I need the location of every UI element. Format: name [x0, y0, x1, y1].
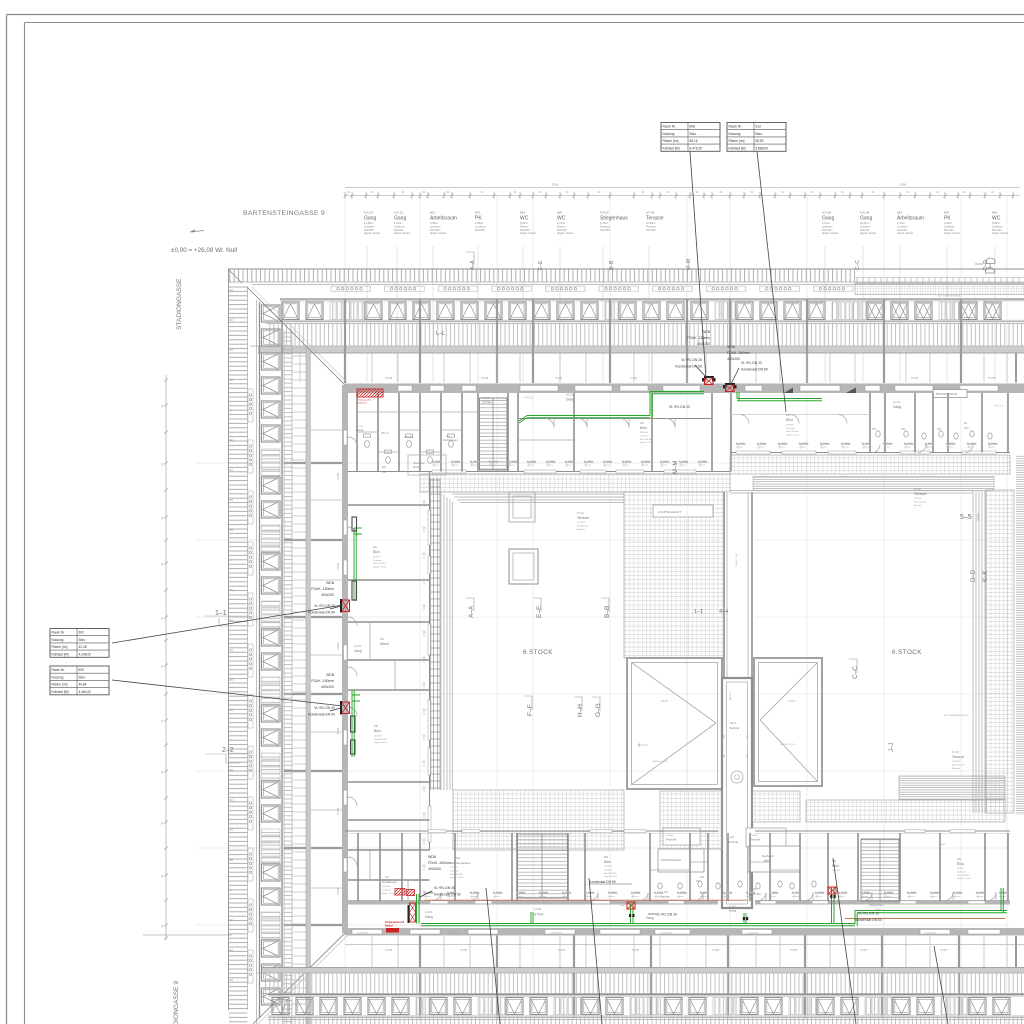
svg-text:Sozialraum: Sozialraum [443, 438, 459, 442]
svg-text:Büro: Büro [690, 132, 697, 136]
svg-text:Einbauwand in: Einbauwand in [357, 400, 372, 402]
svg-text:H=295: H=295 [630, 377, 638, 380]
svg-text:94: 94 [161, 664, 164, 667]
svg-text:Raum Nr.: Raum Nr. [729, 125, 743, 129]
svg-text:94: 94 [161, 562, 164, 565]
svg-text:94: 94 [991, 191, 994, 194]
svg-text:RL 3WWA: RL 3WWA [677, 892, 687, 895]
svg-text:5.888,00: 5.888,00 [756, 146, 769, 150]
svg-text:613: 613 [756, 125, 762, 129]
svg-text:6-C.05: 6-C.05 [822, 211, 831, 215]
svg-text:62,41m²: 62,41m² [373, 555, 381, 558]
svg-text:6-G.04: 6-G.04 [860, 211, 870, 215]
svg-text:H=295: H=295 [988, 377, 996, 380]
svg-text:RH=221: RH=221 [860, 228, 870, 232]
svg-text:RH=330: RH=330 [600, 228, 610, 232]
svg-text:94: 94 [751, 191, 754, 194]
svg-text:Flachdach: Flachdach [762, 854, 775, 858]
svg-text:Gang: Gang [646, 916, 654, 920]
svg-text:abgeh. Decke: abgeh. Decke [992, 231, 1009, 235]
svg-text:Büro: Büro [374, 729, 381, 733]
svg-text:H=295: H=295 [337, 642, 340, 650]
svg-text:GEFÄLLE 1,5%: GEFÄLLE 1,5% [652, 760, 667, 763]
svg-text:WC: WC [964, 426, 969, 430]
svg-text:±0,00 = +26,08 Wr. Null: ±0,00 = +26,08 Wr. Null [171, 247, 237, 254]
svg-text:RL 3WWA: RL 3WWA [769, 892, 779, 895]
svg-text:Büro: Büro [640, 426, 647, 430]
svg-text:STADIONGASSE: STADIONGASSE [176, 278, 183, 330]
svg-text:RH=230-266: RH=230-266 [640, 439, 653, 441]
svg-text:Gang: Gang [356, 428, 364, 432]
svg-text:94: 94 [936, 191, 939, 194]
svg-text:RL 3WWA: RL 3WWA [654, 892, 664, 895]
svg-text:Kondensat DN 50: Kondensat DN 50 [589, 880, 616, 884]
svg-text:H=295: H=295 [385, 949, 393, 952]
svg-text:4,75m²: 4,75m² [600, 221, 608, 225]
svg-text:FDUK -150mm: FDUK -150mm [311, 587, 334, 591]
svg-text:RL 3WWA: RL 3WWA [946, 443, 956, 446]
svg-text:RL 3WWA: RL 3WWA [546, 461, 556, 464]
svg-text:STGH: STGH [534, 913, 544, 917]
svg-text:abgeh. Decke: abgeh. Decke [430, 231, 447, 235]
svg-text:94: 94 [963, 191, 966, 194]
svg-text:42,48: 42,48 [79, 645, 87, 649]
svg-text:68,16: 68,16 [690, 139, 698, 143]
svg-text:+28,30: +28,30 [660, 699, 669, 703]
svg-text:5–5: 5–5 [960, 514, 972, 521]
svg-text:G–G: G–G [595, 703, 602, 717]
svg-text:RH=230: RH=230 [475, 228, 485, 232]
svg-text:WC: WC [937, 427, 942, 431]
svg-text:Terrasse: Terrasse [577, 516, 589, 520]
svg-text:RL 3WWA: RL 3WWA [451, 461, 461, 464]
svg-text:Gang: Gang [394, 216, 406, 222]
svg-text:Technik: Technik [728, 840, 739, 844]
svg-text:RL 3WWA: RL 3WWA [489, 461, 499, 464]
svg-text:RL 3WWA: RL 3WWA [603, 461, 613, 464]
svg-text:44,84: 44,84 [79, 683, 87, 687]
svg-text:GLAS: GLAS [620, 904, 626, 907]
svg-text:400x200: 400x200 [321, 593, 334, 597]
svg-text:RL 3WWA: RL 3WWA [862, 443, 872, 446]
svg-text:6-C.04: 6-C.04 [893, 401, 901, 404]
svg-text:Bituplan: Bituplan [952, 767, 961, 770]
svg-text:Terasse: Terasse [646, 216, 664, 222]
svg-text:PK: PK [872, 427, 876, 431]
svg-text:400x200: 400x200 [428, 867, 441, 871]
svg-text:BARTENSTEINGASSE 9: BARTENSTEINGASSE 9 [243, 210, 325, 217]
svg-text:10,45m²: 10,45m² [914, 497, 922, 500]
svg-text:Linoleum: Linoleum [382, 889, 391, 891]
svg-text:PK: PK [475, 216, 482, 222]
svg-text:Terrazzo: Terrazzo [600, 224, 611, 228]
svg-text:4–4: 4–4 [719, 609, 728, 615]
svg-text:RL 3WWA: RL 3WWA [700, 892, 710, 895]
svg-text:400x200: 400x200 [727, 357, 740, 361]
svg-text:Schulungsraum: Schulungsraum [450, 861, 471, 865]
svg-text:Gang: Gang [364, 216, 376, 222]
svg-text:58,83m²: 58,83m² [786, 423, 794, 426]
svg-text:6-G.01: 6-G.01 [354, 645, 362, 648]
svg-text:94: 94 [872, 191, 875, 194]
svg-text:Gang: Gang [822, 216, 834, 222]
svg-text:H=295: H=295 [860, 949, 868, 952]
svg-text:2560: 2560 [900, 182, 907, 186]
svg-text:Steinplatten: Steinplatten [577, 524, 589, 527]
svg-text:5 STUKCEM: 5 STUKCEM [550, 932, 562, 934]
svg-text:RL 3WWA: RL 3WWA [631, 892, 641, 895]
svg-text:FDUK -150mm: FDUK -150mm [727, 351, 750, 355]
svg-text:abgeh. Decke: abgeh. Decke [860, 231, 877, 235]
svg-text:RL 3WWA: RL 3WWA [539, 892, 549, 895]
svg-text:abgeh. Decke: abgeh. Decke [897, 231, 914, 235]
svg-text:Technik: Technik [729, 726, 740, 730]
svg-text:Nutzung: Nutzung [52, 638, 64, 642]
svg-text:RH=238-284: RH=238-284 [604, 873, 617, 875]
svg-text:94: 94 [781, 191, 784, 194]
svg-text:Linoleum: Linoleum [604, 869, 613, 871]
svg-text:RH=225: RH=225 [520, 228, 530, 232]
svg-text:400x200: 400x200 [321, 685, 334, 689]
svg-text:RL 3WWA: RL 3WWA [470, 461, 480, 464]
svg-text:5,60m²: 5,60m² [520, 221, 528, 225]
svg-text:RL 3WWA: RL 3WWA [792, 892, 802, 895]
svg-text:639: 639 [374, 725, 379, 728]
svg-text:H=295: H=295 [337, 472, 340, 480]
svg-text:VL+RL DN 40: VL+RL DN 40 [434, 886, 455, 890]
svg-text:Fliesen: Fliesen [557, 224, 566, 228]
svg-text:RH=238-265: RH=238-265 [786, 431, 799, 433]
svg-text:abgeh. Decke: abgeh. Decke [944, 231, 961, 235]
svg-text:RL 3WWA: RL 3WWA [562, 892, 572, 895]
svg-text:WC: WC [557, 216, 566, 222]
svg-text:abgeh. Decke: abgeh. Decke [957, 878, 971, 880]
svg-text:94: 94 [538, 191, 541, 194]
svg-text:Beton platten: Beton platten [914, 500, 928, 503]
svg-text:H=295: H=295 [555, 377, 563, 380]
svg-text:625: 625 [944, 211, 949, 215]
svg-text:620: 620 [897, 211, 902, 215]
svg-text:RH=230: RH=230 [944, 228, 954, 232]
svg-text:5,85m²: 5,85m² [992, 221, 1000, 225]
svg-text:Büro: Büro [786, 418, 793, 422]
svg-text:M–M: M–M [673, 461, 679, 474]
svg-text:1–1: 1–1 [694, 609, 703, 615]
svg-text:FDUK -150mm: FDUK -150mm [428, 861, 451, 865]
svg-text:94: 94 [811, 191, 814, 194]
svg-text:6-T.04: 6-T.04 [646, 211, 655, 215]
svg-text:RH=250: RH=250 [364, 228, 374, 232]
svg-text:VL+RL DN 20: VL+RL DN 20 [741, 361, 762, 365]
svg-text:STADIONGASSE 9: STADIONGASSE 9 [173, 981, 180, 1024]
svg-text:Technik: Technik [666, 837, 677, 841]
svg-text:M1: M1 [964, 422, 968, 425]
svg-text:94: 94 [841, 191, 844, 194]
svg-text:4,72m²: 4,72m² [897, 221, 905, 225]
svg-text:36,9m²: 36,9m² [957, 867, 964, 870]
svg-text:+29,30: +29,30 [787, 699, 796, 703]
svg-text:603: 603 [475, 211, 480, 215]
svg-text:Linoleum: Linoleum [364, 224, 375, 228]
svg-text:6-S.06: 6-S.06 [534, 908, 542, 911]
svg-text:94: 94 [642, 191, 645, 194]
svg-text:Linoleum: Linoleum [860, 224, 871, 228]
svg-text:Büro: Büro [373, 550, 380, 554]
svg-text:RH=221: RH=221 [822, 228, 832, 232]
svg-text:RH=236-260: RH=236-260 [374, 739, 387, 741]
svg-text:5 STUKCEM: 5 STUKCEM [448, 932, 460, 934]
svg-text:RL 3WWA: RL 3WWA [660, 461, 670, 464]
svg-text:5 STUKCEM: 5 STUKCEM [660, 932, 672, 934]
svg-text:Fliesen: Fliesen [520, 224, 529, 228]
svg-text:3: 3 [723, 754, 725, 758]
svg-text:RH=230: RH=230 [992, 228, 1002, 232]
svg-text:3,28m²: 3,28m² [475, 221, 483, 225]
svg-text:Terrasse: Terrasse [952, 755, 964, 759]
svg-text:ZULUFT 1,5M: ZULUFT 1,5M [736, 553, 738, 566]
svg-text:Fläche [m²]: Fläche [m²] [52, 645, 68, 649]
svg-text:4.484,00: 4.484,00 [79, 690, 92, 694]
svg-text:94: 94 [161, 770, 164, 773]
svg-text:Rohbaum.: Rohbaum. [357, 403, 367, 405]
svg-text:WDB: WDB [326, 581, 335, 585]
svg-text:GEFÄLLE 1,5%: GEFÄLLE 1,5% [780, 743, 795, 746]
svg-text:VL+RL DN 15: VL+RL DN 15 [858, 912, 879, 916]
svg-text:Kondensat DN 50: Kondensat DN 50 [308, 713, 335, 717]
svg-text:abgeh. Decke: abgeh. Decke [373, 567, 387, 569]
svg-text:Flachdach: Flachdach [413, 461, 426, 465]
svg-text:94: 94 [598, 191, 601, 194]
svg-text:6-C.03: 6-C.03 [364, 211, 373, 215]
svg-text:94: 94 [161, 516, 164, 519]
svg-text:Büro: Büro [79, 638, 86, 642]
svg-text:94: 94 [347, 191, 350, 194]
svg-text:RL 3WWA: RL 3WWA [493, 892, 503, 895]
svg-text:601: 601 [373, 546, 378, 549]
svg-text:8.475,29: 8.475,29 [690, 146, 703, 150]
svg-text:RH=230: RH=230 [430, 228, 440, 232]
svg-text:H=295: H=295 [790, 949, 798, 952]
svg-text:RH=236-252: RH=236-252 [373, 563, 386, 565]
svg-text:Arbeitsraum: Arbeitsraum [897, 216, 924, 222]
svg-text:Linoleum: Linoleum [992, 224, 1003, 228]
svg-text:abgeh. Decke: abgeh. Decke [822, 231, 839, 235]
svg-text:E–E: E–E [538, 260, 544, 270]
svg-text:RL 3WWA: RL 3WWA [757, 443, 767, 446]
svg-text:606: 606 [992, 211, 997, 215]
svg-text:94: 94 [402, 191, 405, 194]
svg-text:RL 3WWA: RL 3WWA [799, 443, 809, 446]
svg-text:RL 3WWA: RL 3WWA [679, 461, 689, 464]
svg-text:D–D: D–D [971, 569, 977, 582]
svg-text:WC: WC [901, 427, 906, 431]
svg-text:H=295: H=295 [940, 949, 948, 952]
svg-text:6-T.01: 6-T.01 [577, 512, 584, 515]
svg-text:RL 3WWA: RL 3WWA [723, 892, 733, 895]
svg-text:5 STUKCEM: 5 STUKCEM [747, 932, 759, 934]
svg-text:E–E: E–E [536, 605, 543, 618]
svg-text:1–1: 1–1 [215, 610, 227, 617]
svg-text:WDB: WDB [727, 345, 736, 349]
svg-text:abgeh. Decke: abgeh. Decke [640, 442, 654, 444]
svg-text:Gang: Gang [893, 405, 901, 409]
svg-text:Kondensat DN 50: Kondensat DN 50 [308, 611, 335, 615]
svg-text:Gang: Gang [566, 398, 574, 402]
svg-text:5 STUKCEM: 5 STUKCEM [357, 932, 369, 934]
svg-text:RL 3WWA: RL 3WWA [584, 461, 594, 464]
svg-text:Rampe: Rampe [385, 924, 394, 927]
svg-text:98,16m²: 98,16m² [640, 431, 648, 434]
svg-text:abgeh. Decke: abgeh. Decke [394, 231, 411, 235]
svg-text:Kühllast [W]: Kühllast [W] [52, 652, 69, 656]
svg-text:609: 609 [79, 668, 85, 672]
svg-text:Linoleum: Linoleum [786, 428, 795, 430]
svg-text:636: 636 [456, 857, 461, 860]
svg-text:RL 3WWA: RL 3WWA [608, 892, 618, 895]
svg-text:Raum Nr.: Raum Nr. [52, 668, 66, 672]
svg-text:2: 2 [746, 735, 748, 739]
svg-text:94: 94 [371, 191, 374, 194]
svg-text:94: 94 [447, 191, 450, 194]
svg-text:ABLUFT: ABLUFT [729, 692, 732, 700]
svg-text:WC-H: WC-H [381, 431, 389, 435]
svg-text:RH=221: RH=221 [394, 228, 404, 232]
svg-text:Bituplan: Bituplan [577, 528, 586, 531]
svg-text:94: 94 [514, 191, 517, 194]
svg-text:Arbeit: Arbeit [380, 642, 389, 646]
svg-text:605: 605 [557, 211, 562, 215]
svg-text:RL 3WWA: RL 3WWA [746, 892, 756, 895]
svg-text:13,48m²: 13,48m² [364, 221, 374, 225]
svg-text:Arbeitsraum: Arbeitsraum [430, 216, 457, 222]
svg-text:abgeh. Decke: abgeh. Decke [786, 435, 800, 437]
svg-text:RL 3WWA: RL 3WWA [904, 443, 914, 446]
svg-text:621: 621 [730, 836, 735, 839]
svg-text:K–K: K–K [983, 571, 989, 582]
svg-text:Gang: Gang [425, 915, 433, 919]
svg-text:6.STOCK: 6.STOCK [892, 649, 922, 656]
svg-text:Büro: Büro [756, 132, 763, 136]
svg-text:RL 3WWA: RL 3WWA [884, 892, 894, 895]
svg-text:RH=238-263: RH=238-263 [957, 875, 970, 877]
svg-text:M–M: M–M [686, 259, 692, 270]
svg-text:600: 600 [640, 422, 645, 425]
svg-text:3,51m²: 3,51m² [822, 221, 830, 225]
svg-text:C–C: C–C [855, 260, 861, 270]
svg-text:4,76m²: 4,76m² [557, 221, 565, 225]
svg-text:Nutzung: Nutzung [52, 675, 64, 679]
svg-text:WDB: WDB [702, 330, 711, 334]
svg-text:Linoleum: Linoleum [944, 224, 955, 228]
svg-text:2–2: 2–2 [222, 747, 234, 754]
svg-text:6-T.02: 6-T.02 [914, 488, 921, 491]
svg-text:94: 94 [720, 191, 723, 194]
svg-text:40,04m²: 40,04m² [382, 885, 390, 888]
svg-text:626: 626 [604, 856, 609, 859]
svg-text:Kühllast [W]: Kühllast [W] [663, 146, 680, 150]
svg-text:Linoleum: Linoleum [640, 435, 649, 437]
svg-text:33,05m²: 33,05m² [450, 866, 458, 869]
svg-text:C–C: C–C [852, 666, 859, 679]
svg-text:WDB: WDB [428, 855, 437, 859]
svg-text:RL 3WWA: RL 3WWA [565, 461, 575, 464]
svg-text:Kühllast [W]: Kühllast [W] [52, 690, 69, 694]
svg-text:2: 2 [723, 735, 725, 739]
svg-text:Gang: Gang [354, 649, 362, 653]
svg-text:PK: PK [696, 879, 700, 883]
svg-text:Büro: Büro [957, 862, 964, 866]
svg-text:RH=230: RH=230 [897, 228, 907, 232]
svg-text:RL 3WWA: RL 3WWA [508, 461, 518, 464]
svg-text:94: 94 [906, 191, 909, 194]
svg-text:Kondensat DN 50: Kondensat DN 50 [855, 918, 882, 922]
svg-text:Linoleum: Linoleum [450, 870, 459, 872]
svg-text:H–H: H–H [577, 704, 584, 717]
svg-text:WC-DA: WC-DA [404, 435, 414, 439]
svg-text:GLAS: GLAS [940, 843, 946, 846]
svg-text:5 STUKCEM: 5 STUKCEM [924, 932, 936, 934]
svg-text:LICHTSCHACHT: LICHTSCHACHT [661, 858, 681, 862]
svg-text:44,84m²: 44,84m² [374, 734, 382, 737]
svg-text:Büro: Büro [604, 860, 611, 864]
svg-text:RL 3WWA: RL 3WWA [698, 461, 708, 464]
svg-text:F–F: F–F [527, 704, 534, 716]
svg-text:Sanitär: Sanitär [660, 895, 670, 899]
svg-text:Kondensat DN 50: Kondensat DN 50 [434, 893, 461, 897]
svg-text:J–J: J–J [889, 743, 895, 752]
svg-text:PK: PK [944, 216, 951, 222]
svg-text:94: 94 [481, 191, 484, 194]
svg-text:94: 94 [161, 821, 164, 824]
svg-text:6-S.01: 6-S.01 [600, 211, 609, 215]
svg-text:RL 3WWA: RL 3WWA [432, 461, 442, 464]
svg-text:abgeh. Decke: abgeh. Decke [364, 231, 381, 235]
svg-text:Linoleum: Linoleum [373, 560, 382, 562]
svg-text:638: 638 [752, 888, 757, 891]
svg-text:RL 3WWA: RL 3WWA [815, 892, 825, 895]
svg-text:22,51m²: 22,51m² [860, 221, 870, 225]
svg-text:630: 630 [700, 876, 705, 879]
svg-text:94: 94 [667, 191, 670, 194]
svg-text:H=295: H=295 [460, 949, 468, 952]
svg-text:Sozialraum: Sozialraum [382, 880, 398, 884]
svg-text:Terrasse: Terrasse [914, 492, 926, 496]
svg-text:Büro: Büro [79, 675, 86, 679]
svg-text:H=295: H=295 [911, 377, 919, 380]
svg-text:Stiegenhaus: Stiegenhaus [600, 216, 628, 222]
svg-text:RL 3WWA: RL 3WWA [967, 443, 977, 446]
svg-text:+27,21: +27,21 [524, 396, 534, 400]
svg-text:STGH: STGH [482, 400, 492, 404]
svg-text:29,59m²: 29,59m² [604, 865, 612, 868]
svg-text:633: 633 [664, 891, 669, 894]
svg-text:RL 3WWA: RL 3WWA [907, 892, 917, 895]
svg-text:ALU SONNENBLENDE: ALU SONNENBLENDE [938, 295, 962, 298]
svg-text:615: 615 [957, 858, 962, 861]
svg-text:VL+RL DN 20: VL+RL DN 20 [314, 706, 335, 710]
svg-text:621 a: 621 a [730, 722, 737, 725]
svg-text:WC: WC [520, 216, 529, 222]
svg-text:5,38m²: 5,38m² [430, 221, 438, 225]
svg-text:94: 94 [161, 462, 164, 465]
svg-text:Nutzung: Nutzung [729, 132, 741, 136]
svg-text:FDUK -150mm: FDUK -150mm [311, 679, 334, 683]
svg-text:Büro: Büro [832, 864, 839, 868]
svg-text:3: 3 [746, 754, 748, 758]
svg-text:Linoleum: Linoleum [822, 224, 833, 228]
svg-text:ALU SONNENBLENDE FIX: ALU SONNENBLENDE FIX [944, 714, 969, 717]
svg-text:22,35m²: 22,35m² [646, 221, 656, 225]
